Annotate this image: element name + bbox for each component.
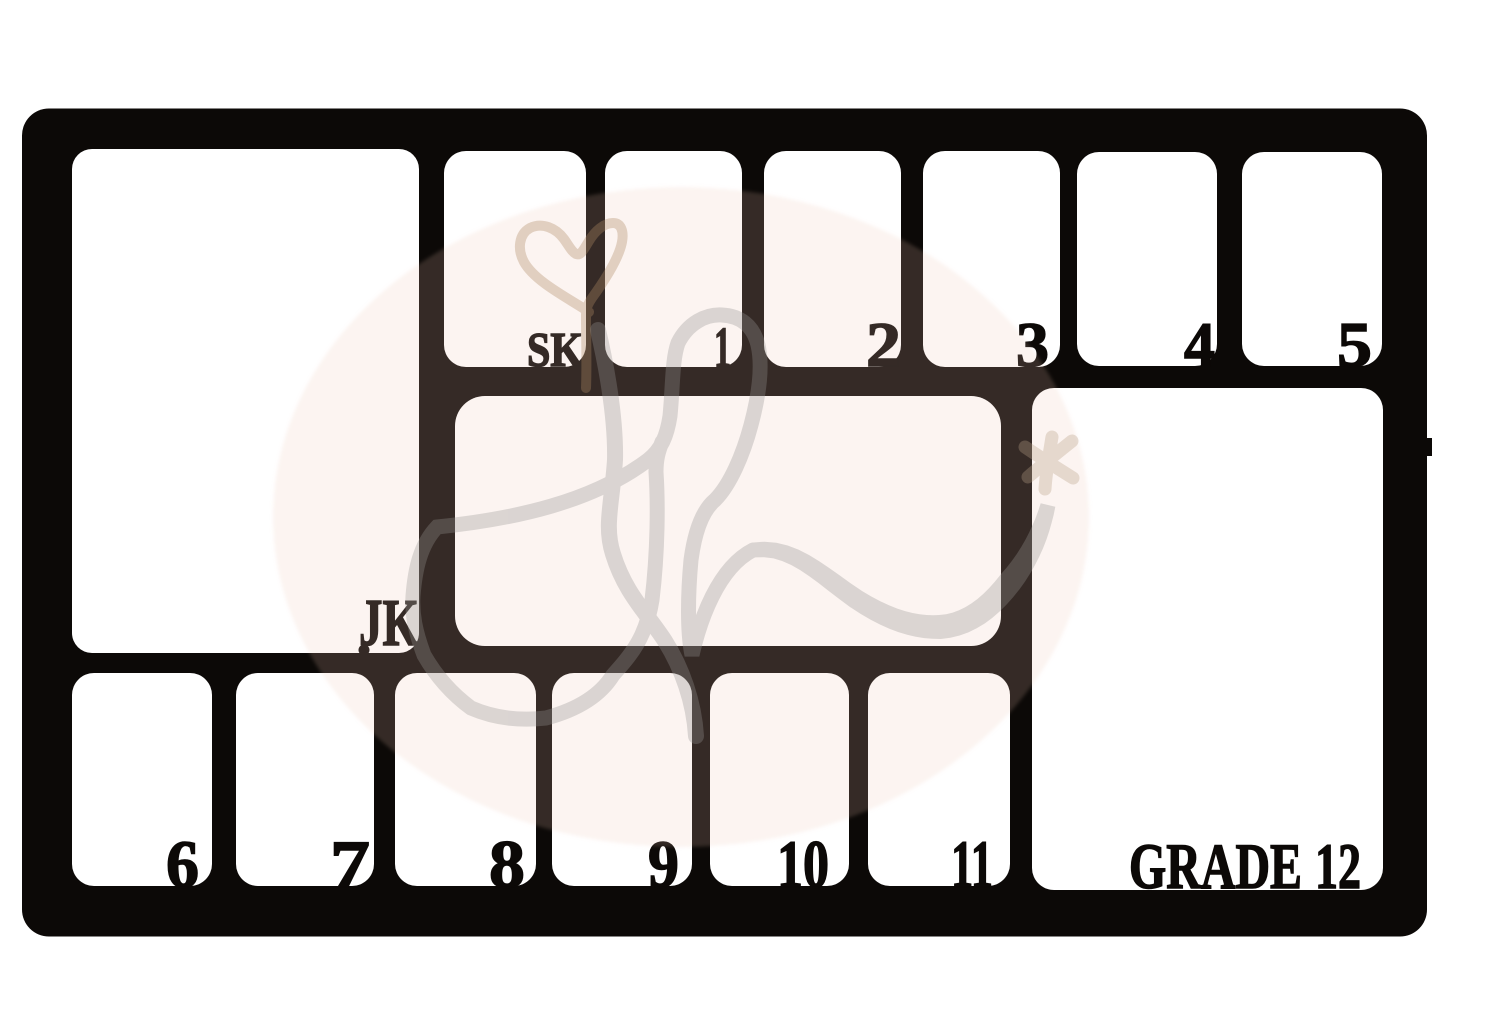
svg-text:GRADE: GRADE	[1129, 831, 1302, 903]
svg-text:6: 6	[166, 826, 199, 902]
svg-text:8: 8	[489, 826, 525, 902]
svg-text:10: 10	[777, 826, 829, 902]
svg-text:12: 12	[1315, 831, 1361, 903]
svg-text:7: 7	[330, 826, 370, 902]
svg-text:4: 4	[1184, 309, 1215, 380]
svg-text:5: 5	[1337, 309, 1372, 380]
svg-text:11: 11	[951, 826, 993, 902]
